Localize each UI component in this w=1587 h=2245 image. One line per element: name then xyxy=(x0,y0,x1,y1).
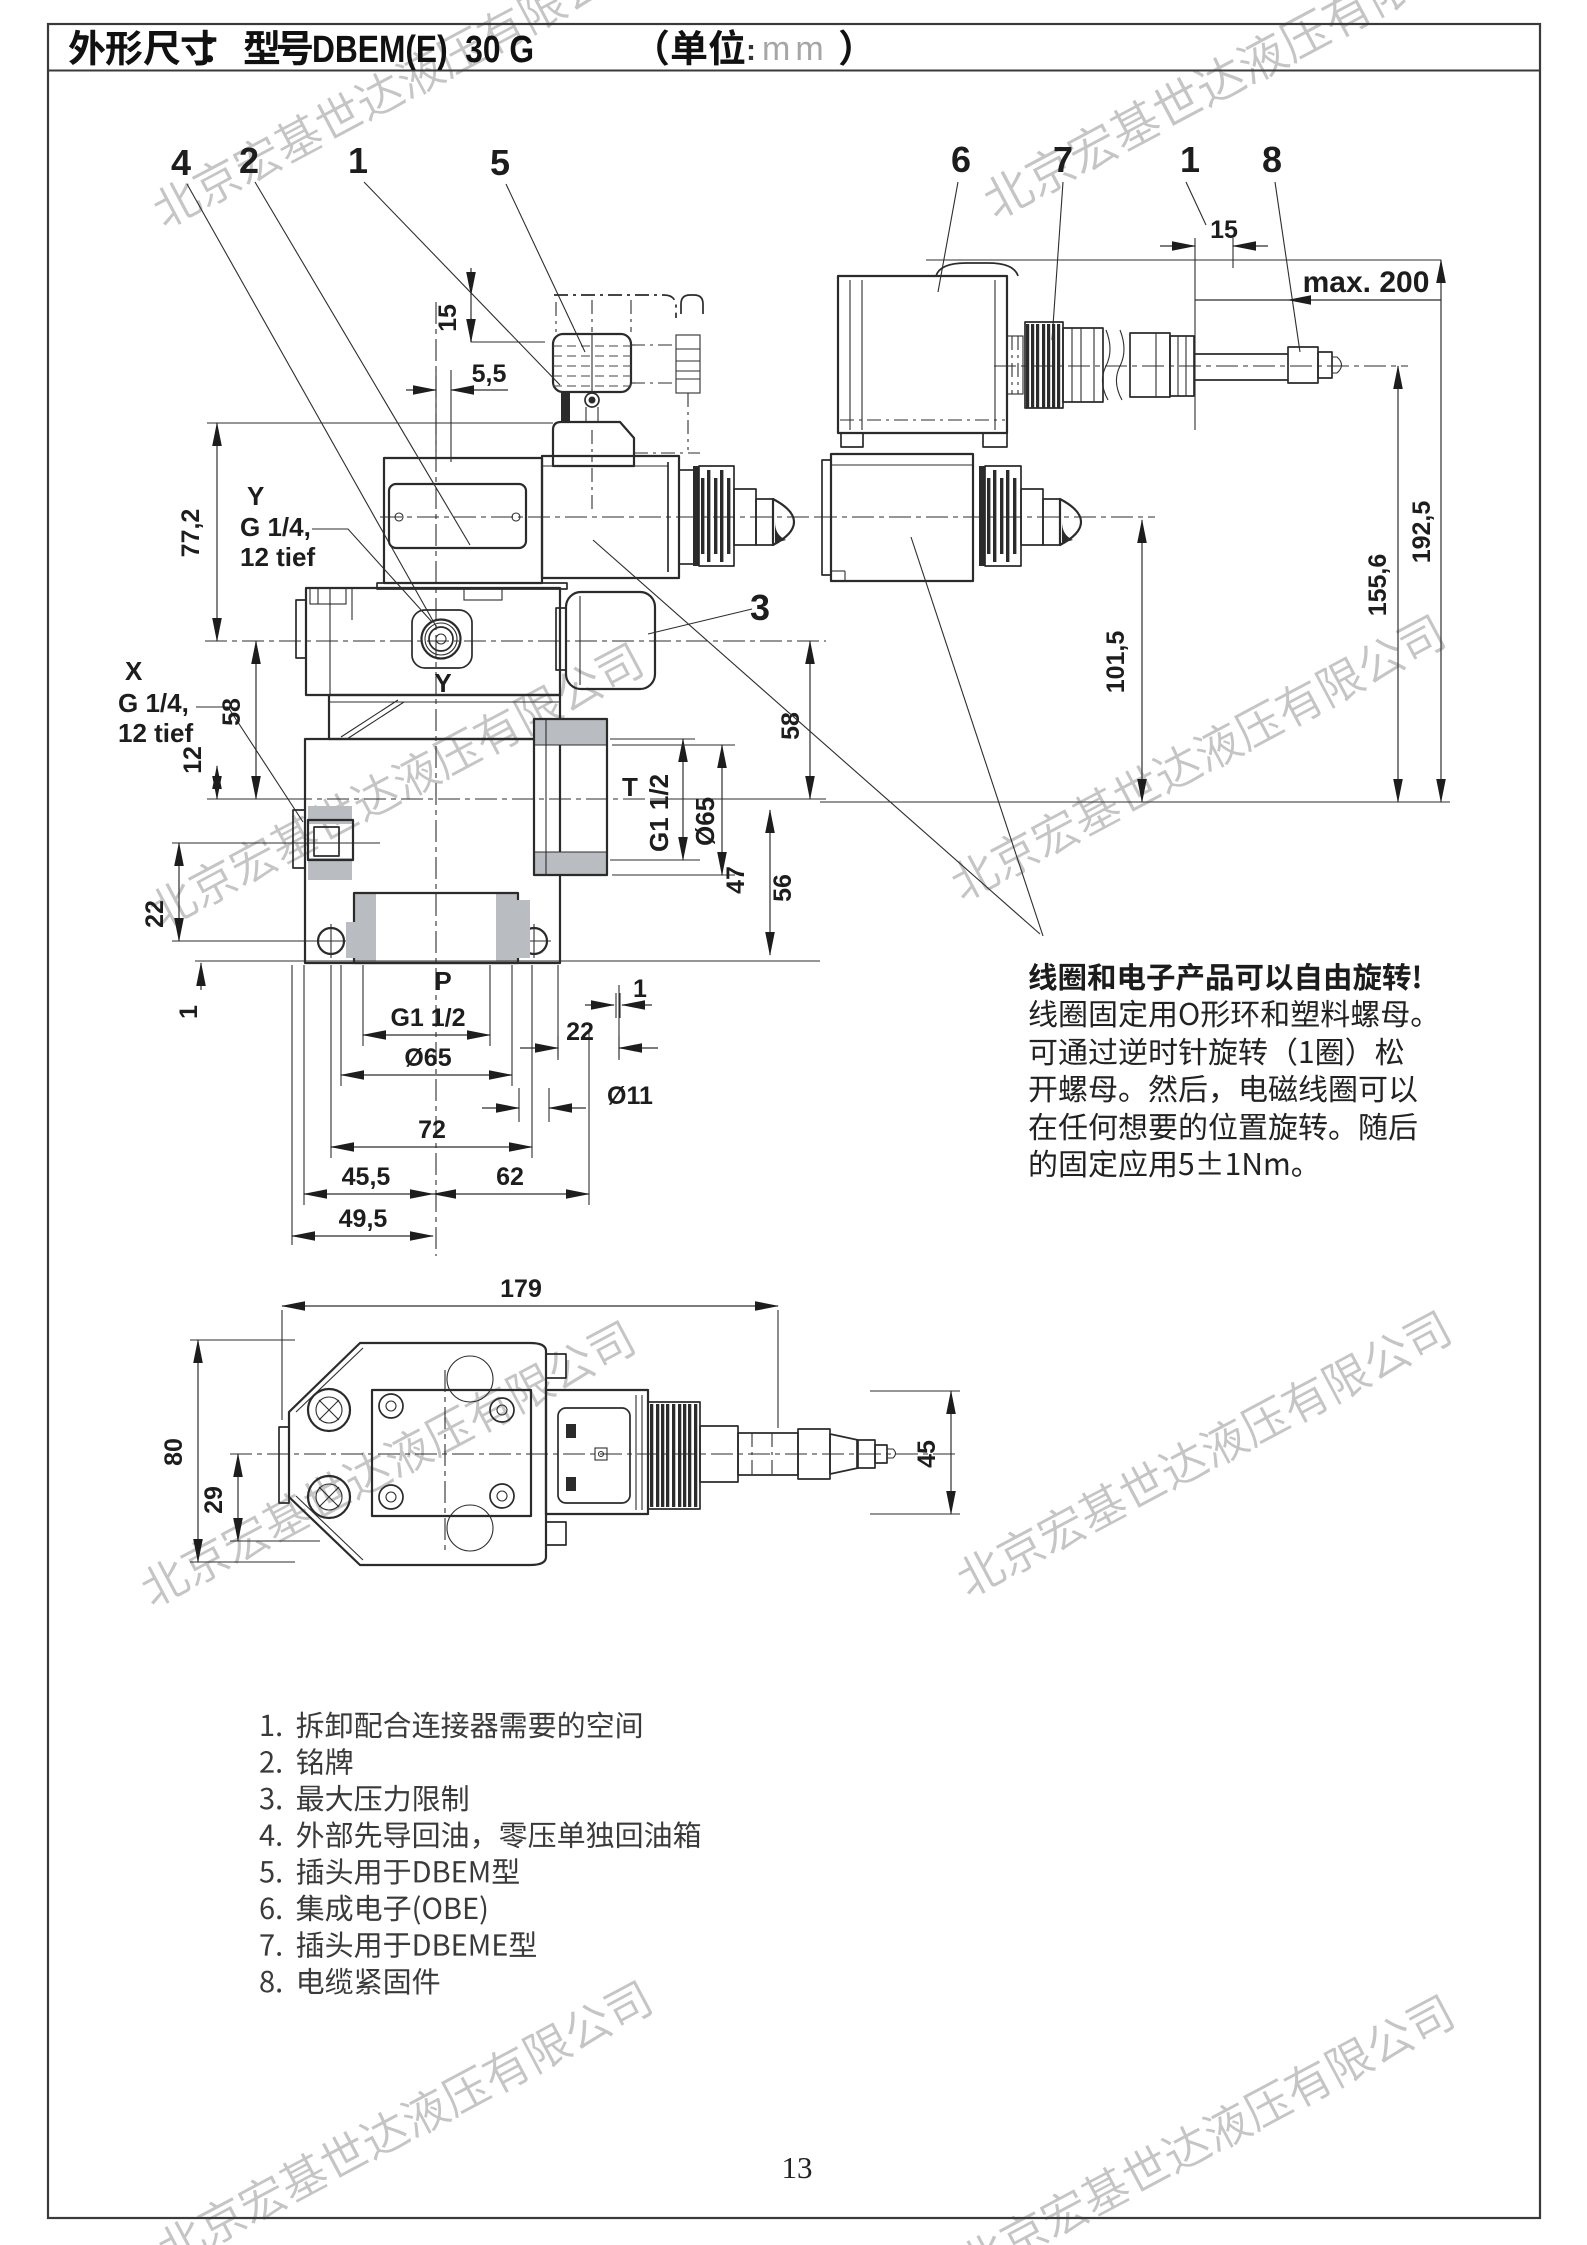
svg-text:Ø11: Ø11 xyxy=(607,1082,653,1110)
svg-text:22: 22 xyxy=(566,1018,594,1046)
svg-text:6: 6 xyxy=(951,139,971,180)
svg-text:58: 58 xyxy=(218,698,246,726)
svg-text:179: 179 xyxy=(500,1275,542,1303)
svg-text:155,6: 155,6 xyxy=(1364,554,1392,617)
svg-text:45: 45 xyxy=(913,1440,941,1468)
svg-text:G 1/4,: G 1/4, xyxy=(240,512,311,542)
svg-text:2: 2 xyxy=(239,140,259,181)
svg-text:max. 200: max. 200 xyxy=(1303,266,1430,299)
svg-text:56: 56 xyxy=(769,874,797,902)
svg-text:1: 1 xyxy=(1180,139,1200,180)
svg-text:12 tief: 12 tief xyxy=(240,542,315,572)
svg-text:1: 1 xyxy=(633,975,647,1003)
svg-text:45,5: 45,5 xyxy=(342,1163,391,1191)
svg-text:Y: Y xyxy=(247,481,264,511)
svg-text:22: 22 xyxy=(141,900,169,928)
svg-text::: : xyxy=(746,34,756,67)
svg-text:12: 12 xyxy=(179,746,207,774)
svg-text:15: 15 xyxy=(434,304,462,332)
svg-text:P: P xyxy=(434,966,451,996)
svg-text:77,2: 77,2 xyxy=(177,509,205,558)
svg-text:12 tief: 12 tief xyxy=(118,718,193,748)
svg-text:3: 3 xyxy=(750,587,770,628)
svg-text:4: 4 xyxy=(171,142,191,183)
svg-text:58: 58 xyxy=(777,712,805,740)
svg-text:29: 29 xyxy=(200,1486,228,1514)
svg-text:7: 7 xyxy=(1053,139,1073,180)
svg-text:G1 1/2: G1 1/2 xyxy=(644,774,674,852)
svg-text:80: 80 xyxy=(160,1438,188,1466)
svg-text:G 1/4,: G 1/4, xyxy=(118,688,189,718)
svg-text:13: 13 xyxy=(782,2150,813,2185)
svg-text:1: 1 xyxy=(175,1005,203,1019)
svg-text:DBEM(E) 30 G: DBEM(E) 30 G xyxy=(312,29,534,71)
svg-text:mm: mm xyxy=(762,30,829,68)
svg-text:101,5: 101,5 xyxy=(1102,631,1130,694)
svg-text:192,5: 192,5 xyxy=(1408,501,1436,564)
svg-text:49,5: 49,5 xyxy=(339,1205,388,1233)
svg-text:72: 72 xyxy=(418,1116,446,1144)
svg-text:Ø65: Ø65 xyxy=(690,797,720,846)
svg-text:Ø65: Ø65 xyxy=(404,1044,451,1072)
svg-text:Y: Y xyxy=(434,668,451,698)
svg-text:T: T xyxy=(622,772,638,802)
svg-text:8: 8 xyxy=(1262,139,1282,180)
svg-text:15: 15 xyxy=(1210,216,1238,244)
svg-text:G1 1/2: G1 1/2 xyxy=(390,1004,465,1032)
svg-text:1: 1 xyxy=(348,140,368,181)
svg-text:5,5: 5,5 xyxy=(472,360,507,388)
svg-text:47: 47 xyxy=(722,866,750,894)
svg-text:5: 5 xyxy=(490,142,510,183)
svg-text:62: 62 xyxy=(496,1163,524,1191)
svg-text:X: X xyxy=(125,656,143,686)
